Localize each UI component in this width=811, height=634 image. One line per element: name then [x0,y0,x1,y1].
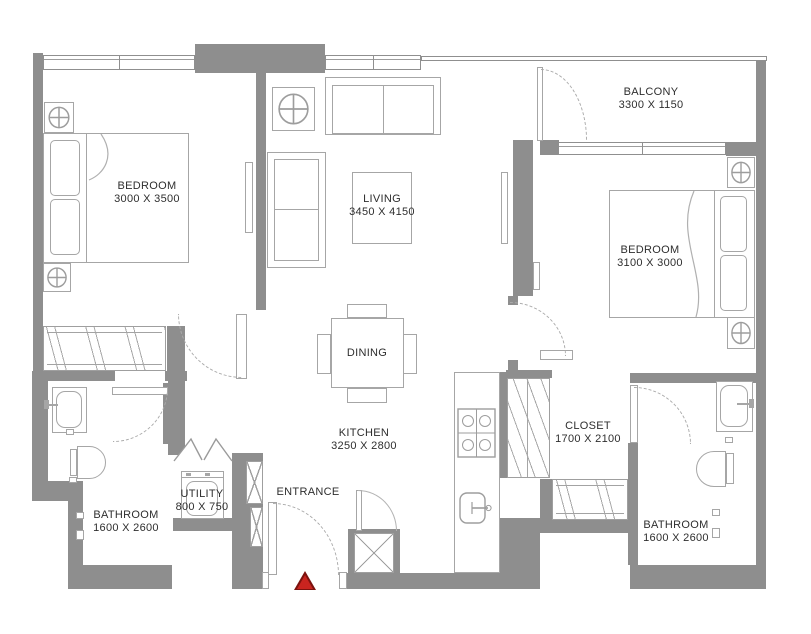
room-name: BEDROOM [88,180,206,193]
wall-segment [33,53,43,96]
ceiling-light-icon [272,87,315,131]
room-label-dining: DINING [329,347,405,360]
room-name: DINING [329,347,405,360]
wall-panel [245,162,253,233]
room-label-bedroom-1: BEDROOM 3000 X 3500 [88,180,206,206]
wardrobe-rail [556,513,624,514]
ceiling-light-icon [43,263,71,292]
window [558,142,726,155]
dining-chair [347,304,387,318]
pillow [50,140,80,196]
stove-icon [457,408,496,458]
room-dims: 3300 X 1150 [591,99,711,112]
room-label-bathroom-2: BATHROOM 1600 X 2600 [616,519,736,545]
ceiling-light-icon [727,317,755,349]
ceiling-light-icon [727,157,755,188]
door-swing-arc [178,314,242,378]
wall-segment [540,140,559,155]
wall-segment [506,370,552,378]
bathtub-faucet-knob [44,400,49,409]
toilet [77,446,106,479]
washer-control-line [182,477,223,478]
wall-segment [256,70,266,310]
room-dims: 3250 X 2800 [304,440,424,453]
wardrobe [552,479,628,520]
room-label-kitchen: KITCHEN 3250 X 2800 [304,427,424,453]
balcony-door-swing-arc [541,69,587,140]
room-label-utility: UTILITY 800 X 750 [142,488,262,514]
kitchen-counter [454,372,500,573]
wall-segment [497,518,540,589]
wall-segment [726,142,756,156]
toilet-tank [70,449,77,476]
entrance-marker-fill [297,575,313,589]
room-dims: 1600 X 2600 [66,522,186,535]
room-name: KITCHEN [304,427,424,440]
wall-segment [68,565,172,589]
door-jamb [262,572,269,589]
dining-chair [347,388,387,403]
sofa-seat-divider [383,86,384,133]
room-label-bedroom-2: BEDROOM 3100 X 3000 [590,244,710,270]
door-jamb [339,572,347,589]
room-dims: 3000 X 3500 [88,193,206,206]
room-dims: 1700 X 2100 [528,433,648,446]
room-dims: 3450 X 4150 [347,206,417,219]
toilet-tank [726,453,734,484]
room-name: UTILITY [142,488,262,501]
pillow [50,199,80,255]
wall-accessory [712,509,720,516]
window [43,55,195,70]
bathtub-basin [720,385,748,427]
sink-icon [458,490,492,526]
wall-segment [756,56,766,589]
room-dims: 3100 X 3000 [590,257,710,270]
wall-segment [630,565,766,589]
wardrobe [43,326,166,371]
room-name: BATHROOM [616,519,736,532]
room-name: BEDROOM [590,244,710,257]
window-mullion [642,143,643,154]
entrance-marker [294,571,316,590]
tv-panel [501,172,508,244]
room-dims: 800 X 750 [142,501,262,514]
wall-accessory [66,429,74,435]
wardrobe-rail [47,332,162,333]
room-name: CLOSET [528,420,648,433]
wall-accessory [69,477,77,483]
bathtub-basin [56,391,82,428]
dining-chair [403,334,417,374]
door-swing-arc [113,388,168,442]
sofa-chaise-seat [274,159,319,261]
wall-segment [508,360,518,371]
bed-headboard-line [86,134,87,262]
wall-segment [165,371,187,381]
room-label-balcony: BALCONY 3300 X 1150 [591,86,711,112]
sofa-chaise-divider [275,209,318,210]
room-label-entrance: ENTRANCE [248,486,368,499]
wall-segment [195,44,325,73]
window-mullion [119,56,120,69]
washer-knob [186,473,191,476]
room-name: ENTRANCE [248,486,368,499]
room-dims: 1600 X 2600 [616,532,736,545]
wall-segment [628,443,638,565]
room-name: LIVING [347,193,417,206]
bifold-door [172,436,234,463]
wardrobe-rail [556,485,624,486]
wardrobe-rail [47,364,162,365]
wall-segment [33,95,43,376]
pillow [720,255,747,311]
balcony-parapet [421,56,767,61]
entrance-door-swing-arc [273,503,339,575]
door-swing-arc [510,302,566,356]
toilet [696,451,726,487]
duct-shaft [354,533,394,573]
wall-segment [513,140,533,296]
room-label-closet: CLOSET 1700 X 2100 [528,420,648,446]
window-mullion [373,56,374,69]
dresser-panel [533,262,540,290]
window [325,55,421,70]
ceiling-light-icon [44,102,74,133]
washer-knob [205,473,210,476]
floor-plan: BEDROOM 3000 X 3500 LIVING 3450 X 4150 B… [0,0,811,634]
room-name: BALCONY [591,86,711,99]
bathtub-faucet-knob [749,399,754,408]
wall-accessory [725,437,733,443]
bed-headboard-line [714,191,715,317]
room-label-living: LIVING 3450 X 4150 [347,193,417,219]
pillow [720,196,747,252]
wall-segment [43,371,115,381]
